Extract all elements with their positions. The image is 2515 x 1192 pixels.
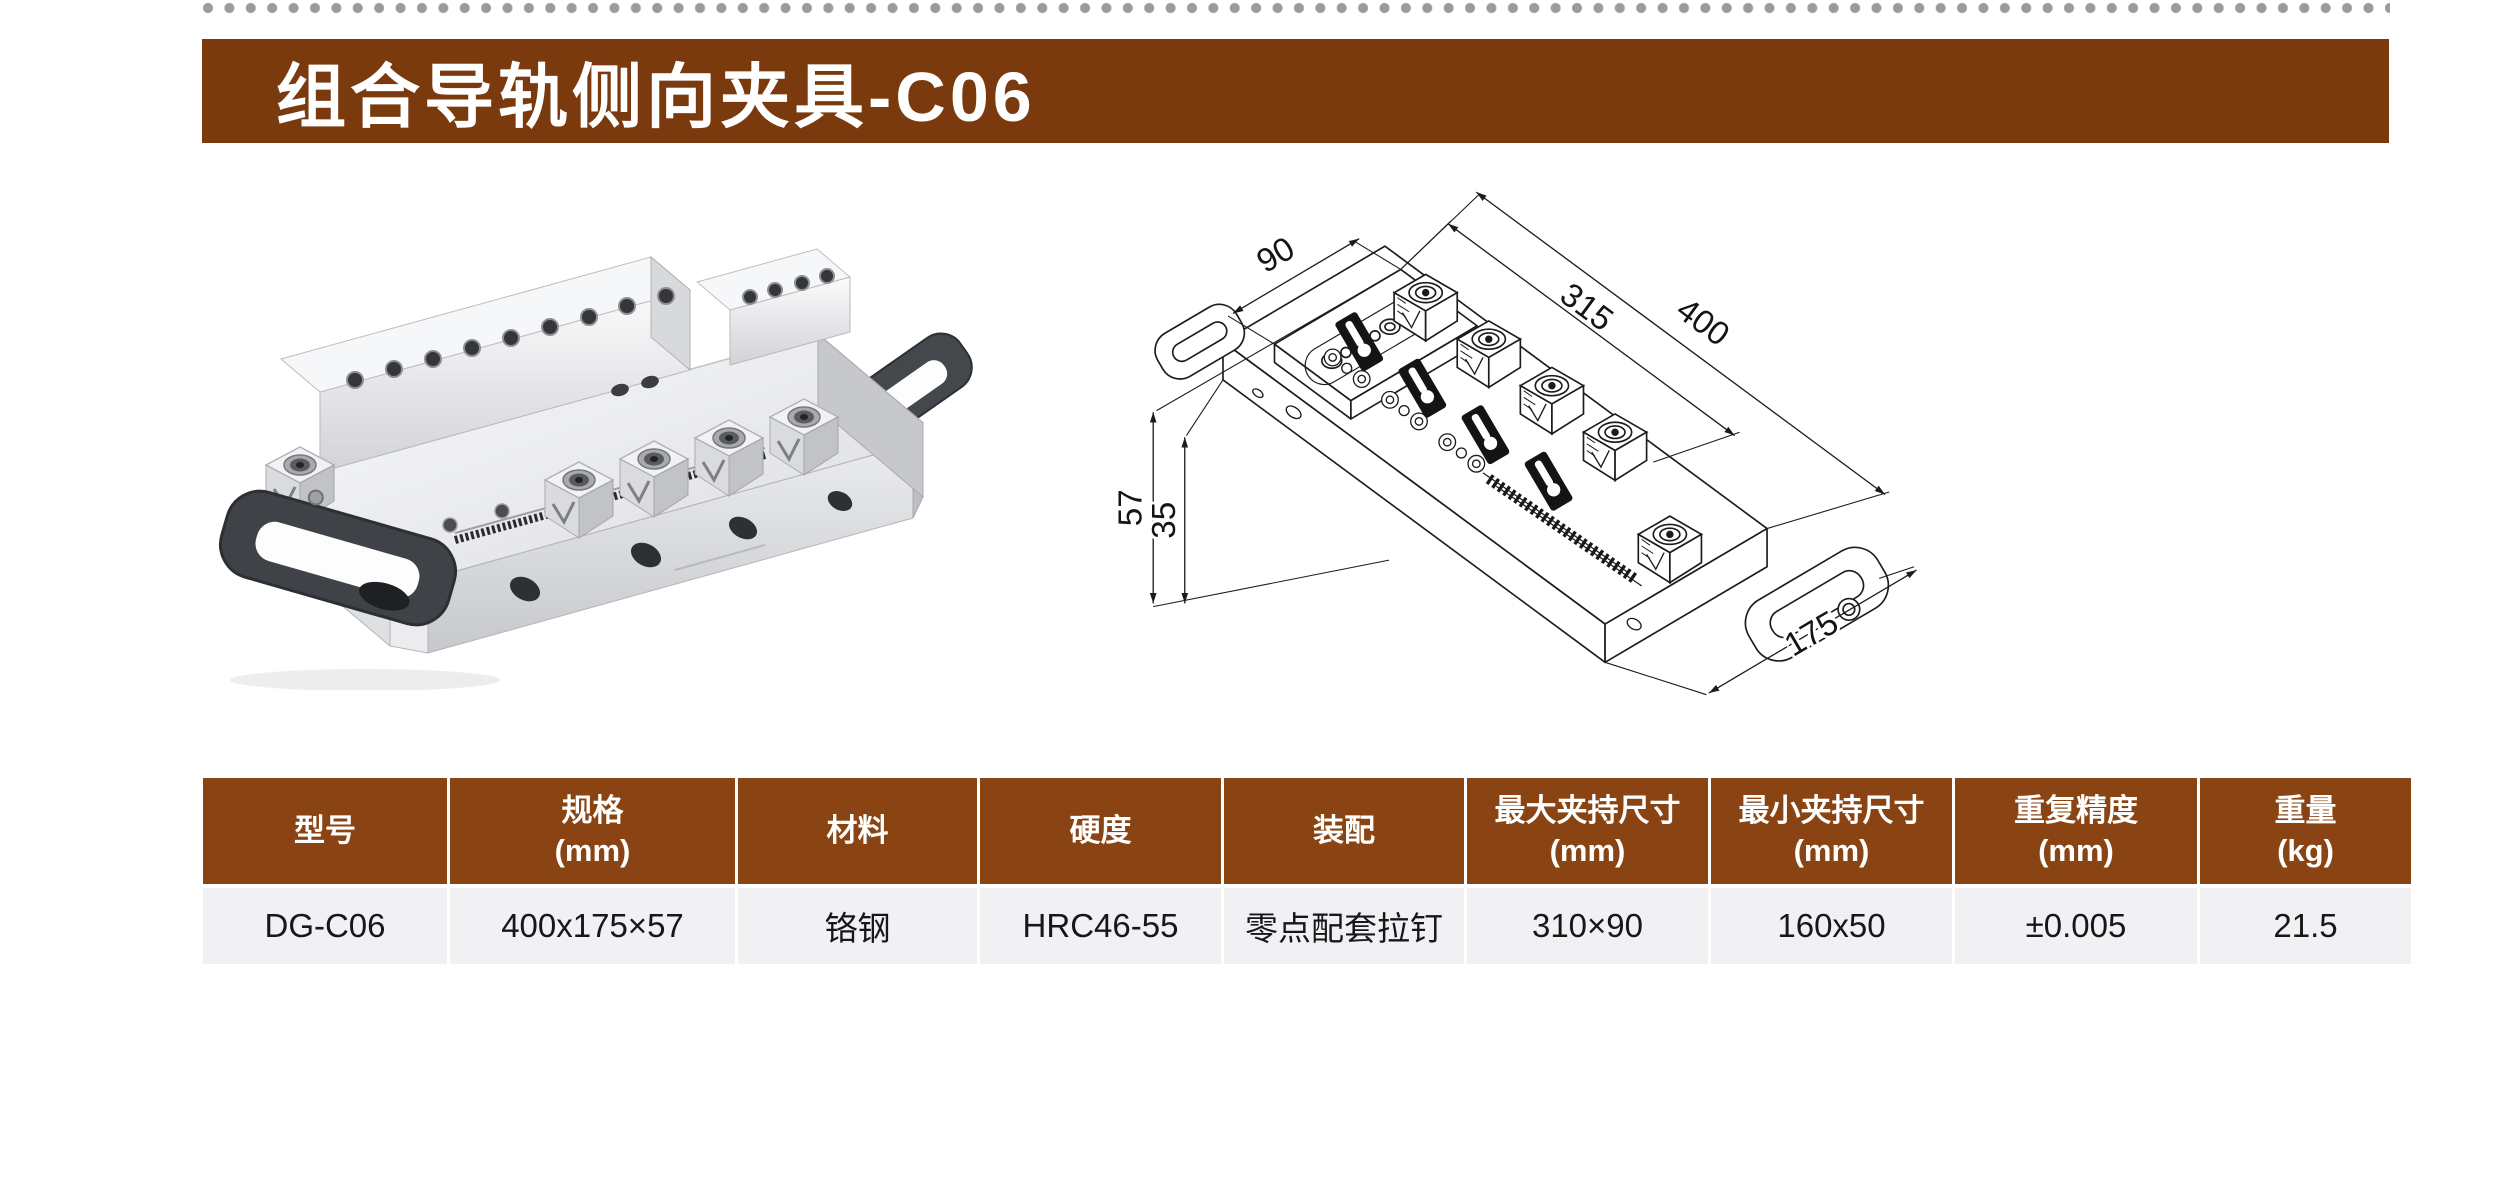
dim-label-90: 90 [1250,230,1301,281]
dim-label-400: 400 [1669,291,1736,354]
page-title: 组合导轨侧向夹具-C06 [202,41,1036,142]
cell-spec: 400x175×57 [450,888,735,964]
cell-material: 铬钢 [738,888,977,964]
col-header-min-clamp-size: 最小夹持尺寸(mm) [1711,778,1952,884]
col-header-max-clamp-size: 最大夹持尺寸(mm) [1467,778,1708,884]
cell-weight: 21.5 [2200,888,2411,964]
cell-assembly: 零点配套拉钉 [1224,888,1464,964]
cell-max-clamp-size: 310×90 [1467,888,1708,964]
cell-model: DG-C06 [203,888,447,964]
dotted-border [203,2,2390,14]
cell-hardness: HRC46-55 [980,888,1221,964]
col-header-weight: 重量(kg) [2200,778,2411,884]
col-header-model: 型号 [203,778,447,884]
title-bar: 组合导轨侧向夹具-C06 [202,39,2389,143]
cell-min-clamp-size: 160x50 [1711,888,1952,964]
col-header-assembly: 装配 [1224,778,1464,884]
spec-table: 型号 规格(mm) 材料 硬度 装配 最大夹持尺寸(mm) 最小夹持尺寸(mm)… [200,774,2414,968]
dim-label-35: 35 [1146,502,1183,539]
col-header-spec: 规格(mm) [450,778,735,884]
technical-drawing-svg: 90 315 400 57 35 175 [1115,188,2105,703]
dim-label-57: 57 [1115,489,1150,526]
cell-repeatability: ±0.005 [1955,888,2197,964]
table-row: DG-C06 400x175×57 铬钢 HRC46-55 零点配套拉钉 310… [203,888,2411,964]
col-header-repeatability: 重复精度(mm) [1955,778,2197,884]
catalog-page: 组合导轨侧向夹具-C06 [0,0,2515,1192]
col-header-material: 材料 [738,778,977,884]
col-header-hardness: 硬度 [980,778,1221,884]
dim-label-315: 315 [1553,276,1620,339]
product-photo-render [205,240,1045,690]
product-photo [205,240,1045,690]
header-row: 型号 规格(mm) 材料 硬度 装配 最大夹持尺寸(mm) 最小夹持尺寸(mm)… [203,778,2411,884]
shadow [230,669,500,690]
technical-drawing: 90 315 400 57 35 175 [1115,188,2105,703]
